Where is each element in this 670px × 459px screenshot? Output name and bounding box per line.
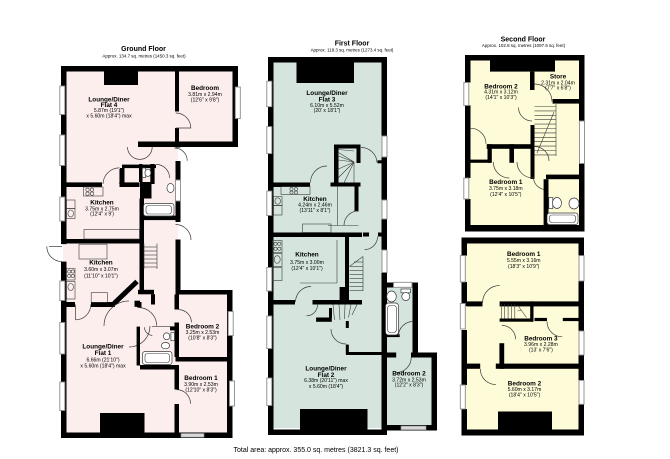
svg-text:Bedroom: Bedroom	[191, 85, 219, 92]
svg-text:(12'4" x 9'): (12'4" x 9')	[90, 212, 114, 218]
svg-text:3.60m x 3.07m: 3.60m x 3.07m	[84, 267, 118, 273]
svg-text:Bedroom 1: Bedroom 1	[184, 375, 218, 382]
svg-text:x 5.60m (18'4") max: x 5.60m (18'4") max	[86, 113, 132, 119]
svg-text:Store: Store	[550, 73, 567, 80]
svg-text:(20' x 18'1"): (20' x 18'1")	[314, 108, 341, 114]
svg-text:Total area: approx. 355.0 sq.: Total area: approx. 355.0 sq. metres (38…	[234, 447, 399, 454]
svg-text:Bedroom 1: Bedroom 1	[489, 179, 523, 186]
svg-text:3.75m x 3.00m: 3.75m x 3.00m	[290, 260, 324, 266]
svg-text:Approx. 134.7 sq. metres (1450: Approx. 134.7 sq. metres (1450.3 sq. fee…	[102, 54, 186, 59]
svg-text:(12'4" x 10'1"): (12'4" x 10'1")	[291, 266, 323, 272]
svg-text:(12'10" x 8'3"): (12'10" x 8'3")	[185, 388, 217, 394]
svg-text:(12'6" x 9'8"): (12'6" x 9'8")	[191, 98, 220, 104]
svg-text:(18'4" x 10'5"): (18'4" x 10'5")	[509, 393, 541, 399]
svg-text:(11'10" x 10'1"): (11'10" x 10'1")	[84, 273, 118, 279]
svg-text:Approx. 102.8 sq. metres (1097: Approx. 102.8 sq. metres (1097.5 sq. fee…	[482, 43, 566, 48]
svg-text:Approx. 118.3 sq. metres (1273: Approx. 118.3 sq. metres (1273.4 sq. fee…	[311, 48, 394, 53]
svg-text:(12'4" x 10'5"): (12'4" x 10'5")	[490, 192, 522, 198]
svg-text:(7'7" x 6'8"): (7'7" x 6'8")	[545, 86, 571, 92]
svg-text:Bedroom 1: Bedroom 1	[507, 251, 541, 258]
svg-text:Bedroom 2: Bedroom 2	[392, 371, 426, 378]
svg-text:Flat 1: Flat 1	[95, 350, 112, 357]
svg-text:(18'3" x 10'9"): (18'3" x 10'9")	[508, 264, 540, 270]
svg-text:(10'8" x 8'3"): (10'8" x 8'3")	[188, 335, 217, 341]
svg-text:x 5.60m (18'4"): x 5.60m (18'4")	[309, 384, 344, 390]
svg-text:Kitchen: Kitchen	[295, 251, 319, 258]
svg-text:(14'1" x 10'3"): (14'1" x 10'3")	[485, 95, 517, 101]
svg-text:Ground Floor: Ground Floor	[121, 46, 166, 53]
svg-text:Kitchen: Kitchen	[89, 260, 113, 267]
svg-text:(12'2" x 8'3"): (12'2" x 8'3")	[395, 382, 424, 388]
svg-text:First Floor: First Floor	[335, 41, 370, 48]
svg-text:(13' x 7'6"): (13' x 7'6")	[529, 347, 553, 353]
svg-text:x 5.60m (18'4") max: x 5.60m (18'4") max	[80, 364, 126, 370]
svg-text:(13'11" x 8'1"): (13'11" x 8'1")	[300, 208, 331, 214]
